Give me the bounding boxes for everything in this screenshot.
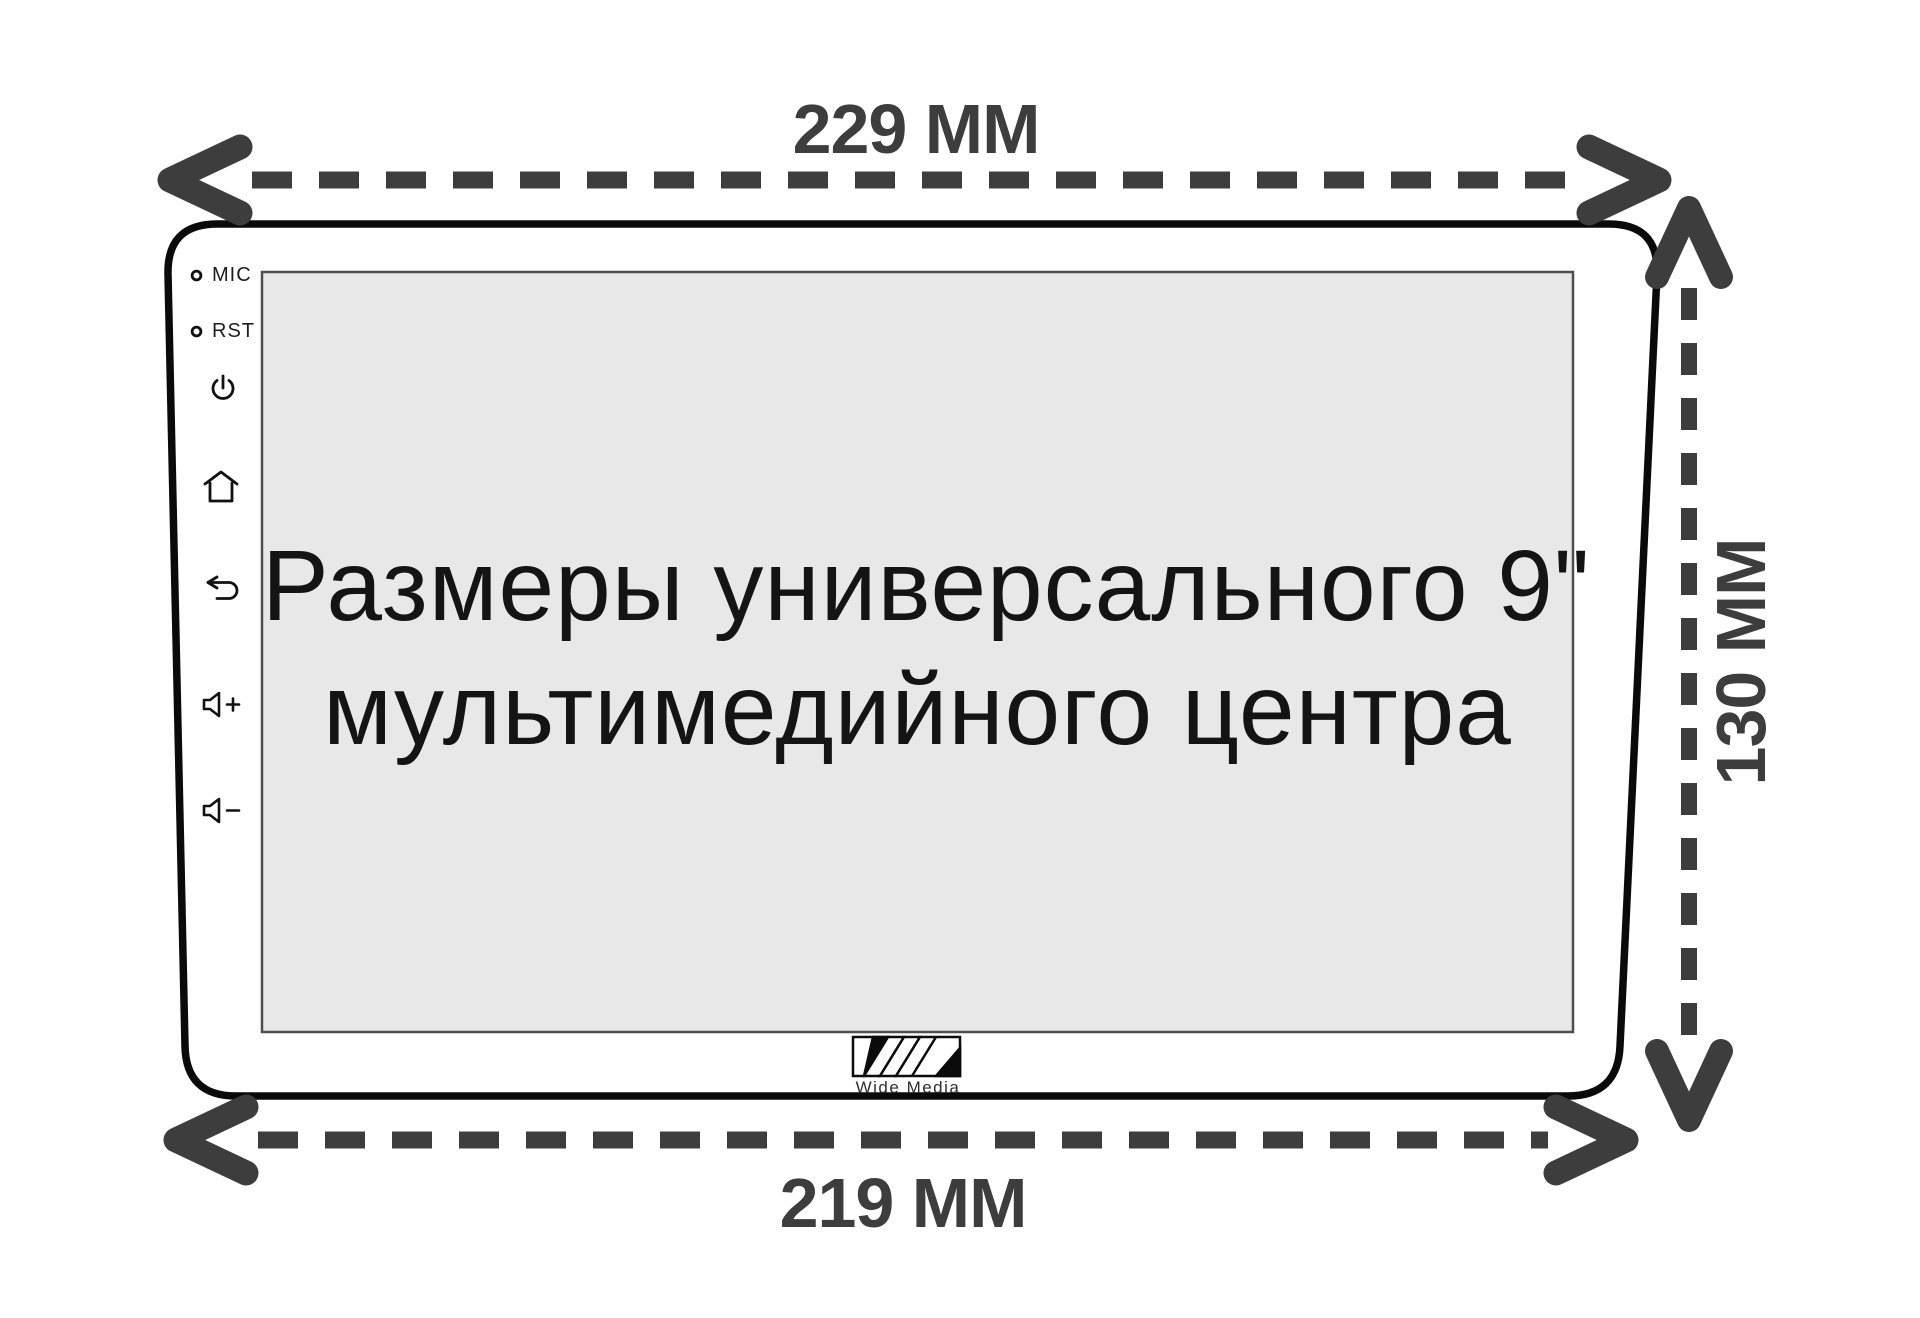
home-icon: [201, 468, 241, 505]
reset-hole-icon: [190, 325, 203, 338]
reset-indicator: RST: [190, 321, 255, 341]
screen-caption-line2: мультимедийного центра: [262, 656, 1573, 764]
volume-down-icon: [200, 796, 242, 825]
top-dimension-label: 229 MM: [516, 94, 1316, 164]
mic-indicator: MIC: [190, 265, 252, 285]
mic-hole-icon: [190, 269, 203, 282]
diagram-canvas: 229 MM 219 MM 130 MM Размеры универсальн…: [0, 0, 1920, 1318]
volume-up-icon: [200, 690, 242, 719]
bottom-dimension-label: 219 MM: [503, 1168, 1303, 1238]
brand-logo-text: Wide Media: [828, 1078, 988, 1098]
side-dimension-label: 130 MM: [1706, 462, 1776, 862]
brand-logo-icon: [853, 1037, 960, 1076]
power-icon: [207, 373, 239, 407]
back-icon: [203, 574, 241, 605]
screen-caption-line1: Размеры универсального 9": [262, 532, 1573, 640]
device-screen: [262, 272, 1573, 1032]
reset-label: RST: [212, 321, 255, 341]
mic-label: MIC: [212, 265, 252, 285]
